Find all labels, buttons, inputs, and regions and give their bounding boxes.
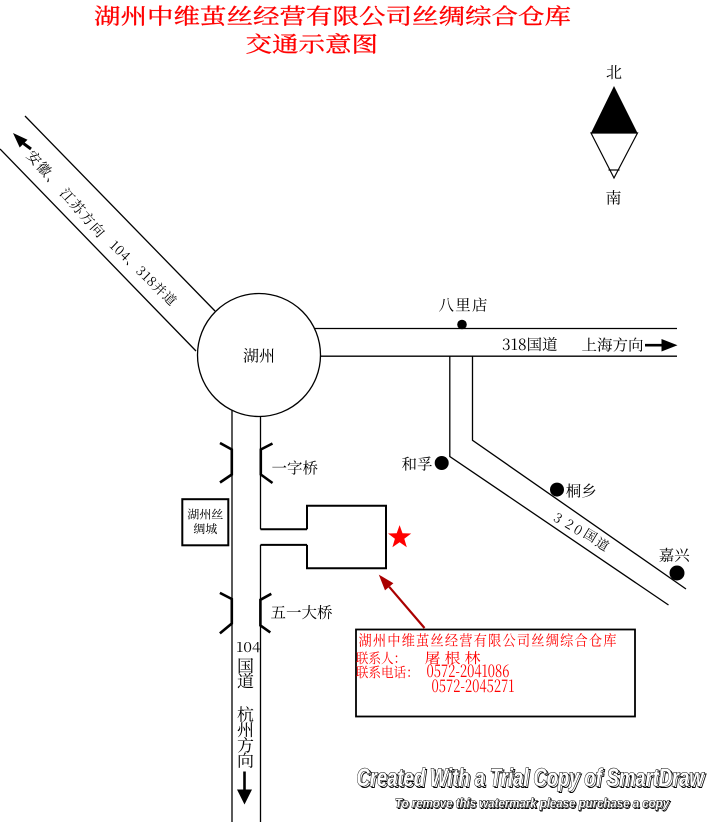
svg-text:Created With a Trial Copy of S: Created With a Trial Copy of SmartDraw [357, 764, 705, 792]
svg-text:To remove this watermark pleas: To remove this watermark please purchase… [395, 797, 670, 811]
